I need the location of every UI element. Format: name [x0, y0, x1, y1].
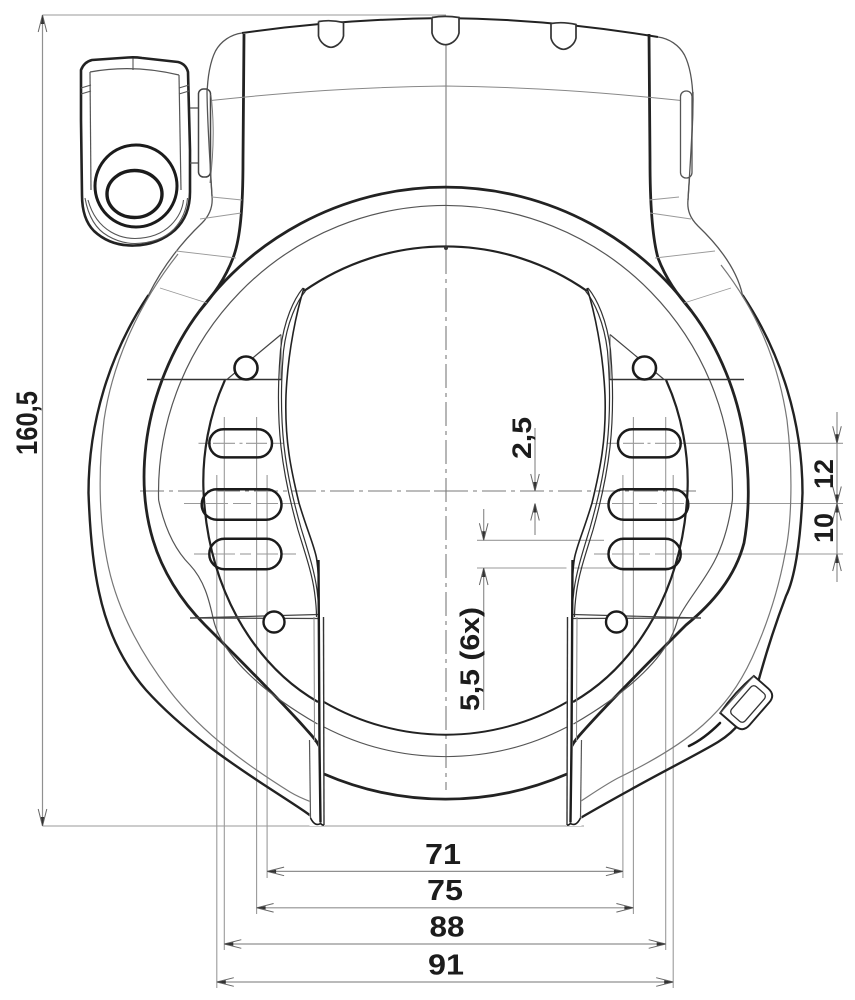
svg-text:160,5: 160,5: [11, 391, 44, 455]
svg-text:71: 71: [425, 839, 461, 871]
svg-text:88: 88: [430, 912, 465, 944]
svg-text:2,5: 2,5: [507, 417, 537, 459]
svg-text:10: 10: [809, 513, 839, 543]
svg-text:91: 91: [428, 950, 464, 982]
svg-text:12: 12: [809, 459, 839, 489]
svg-text:75: 75: [427, 875, 463, 907]
svg-text:5,5 (6x): 5,5 (6x): [455, 607, 485, 711]
